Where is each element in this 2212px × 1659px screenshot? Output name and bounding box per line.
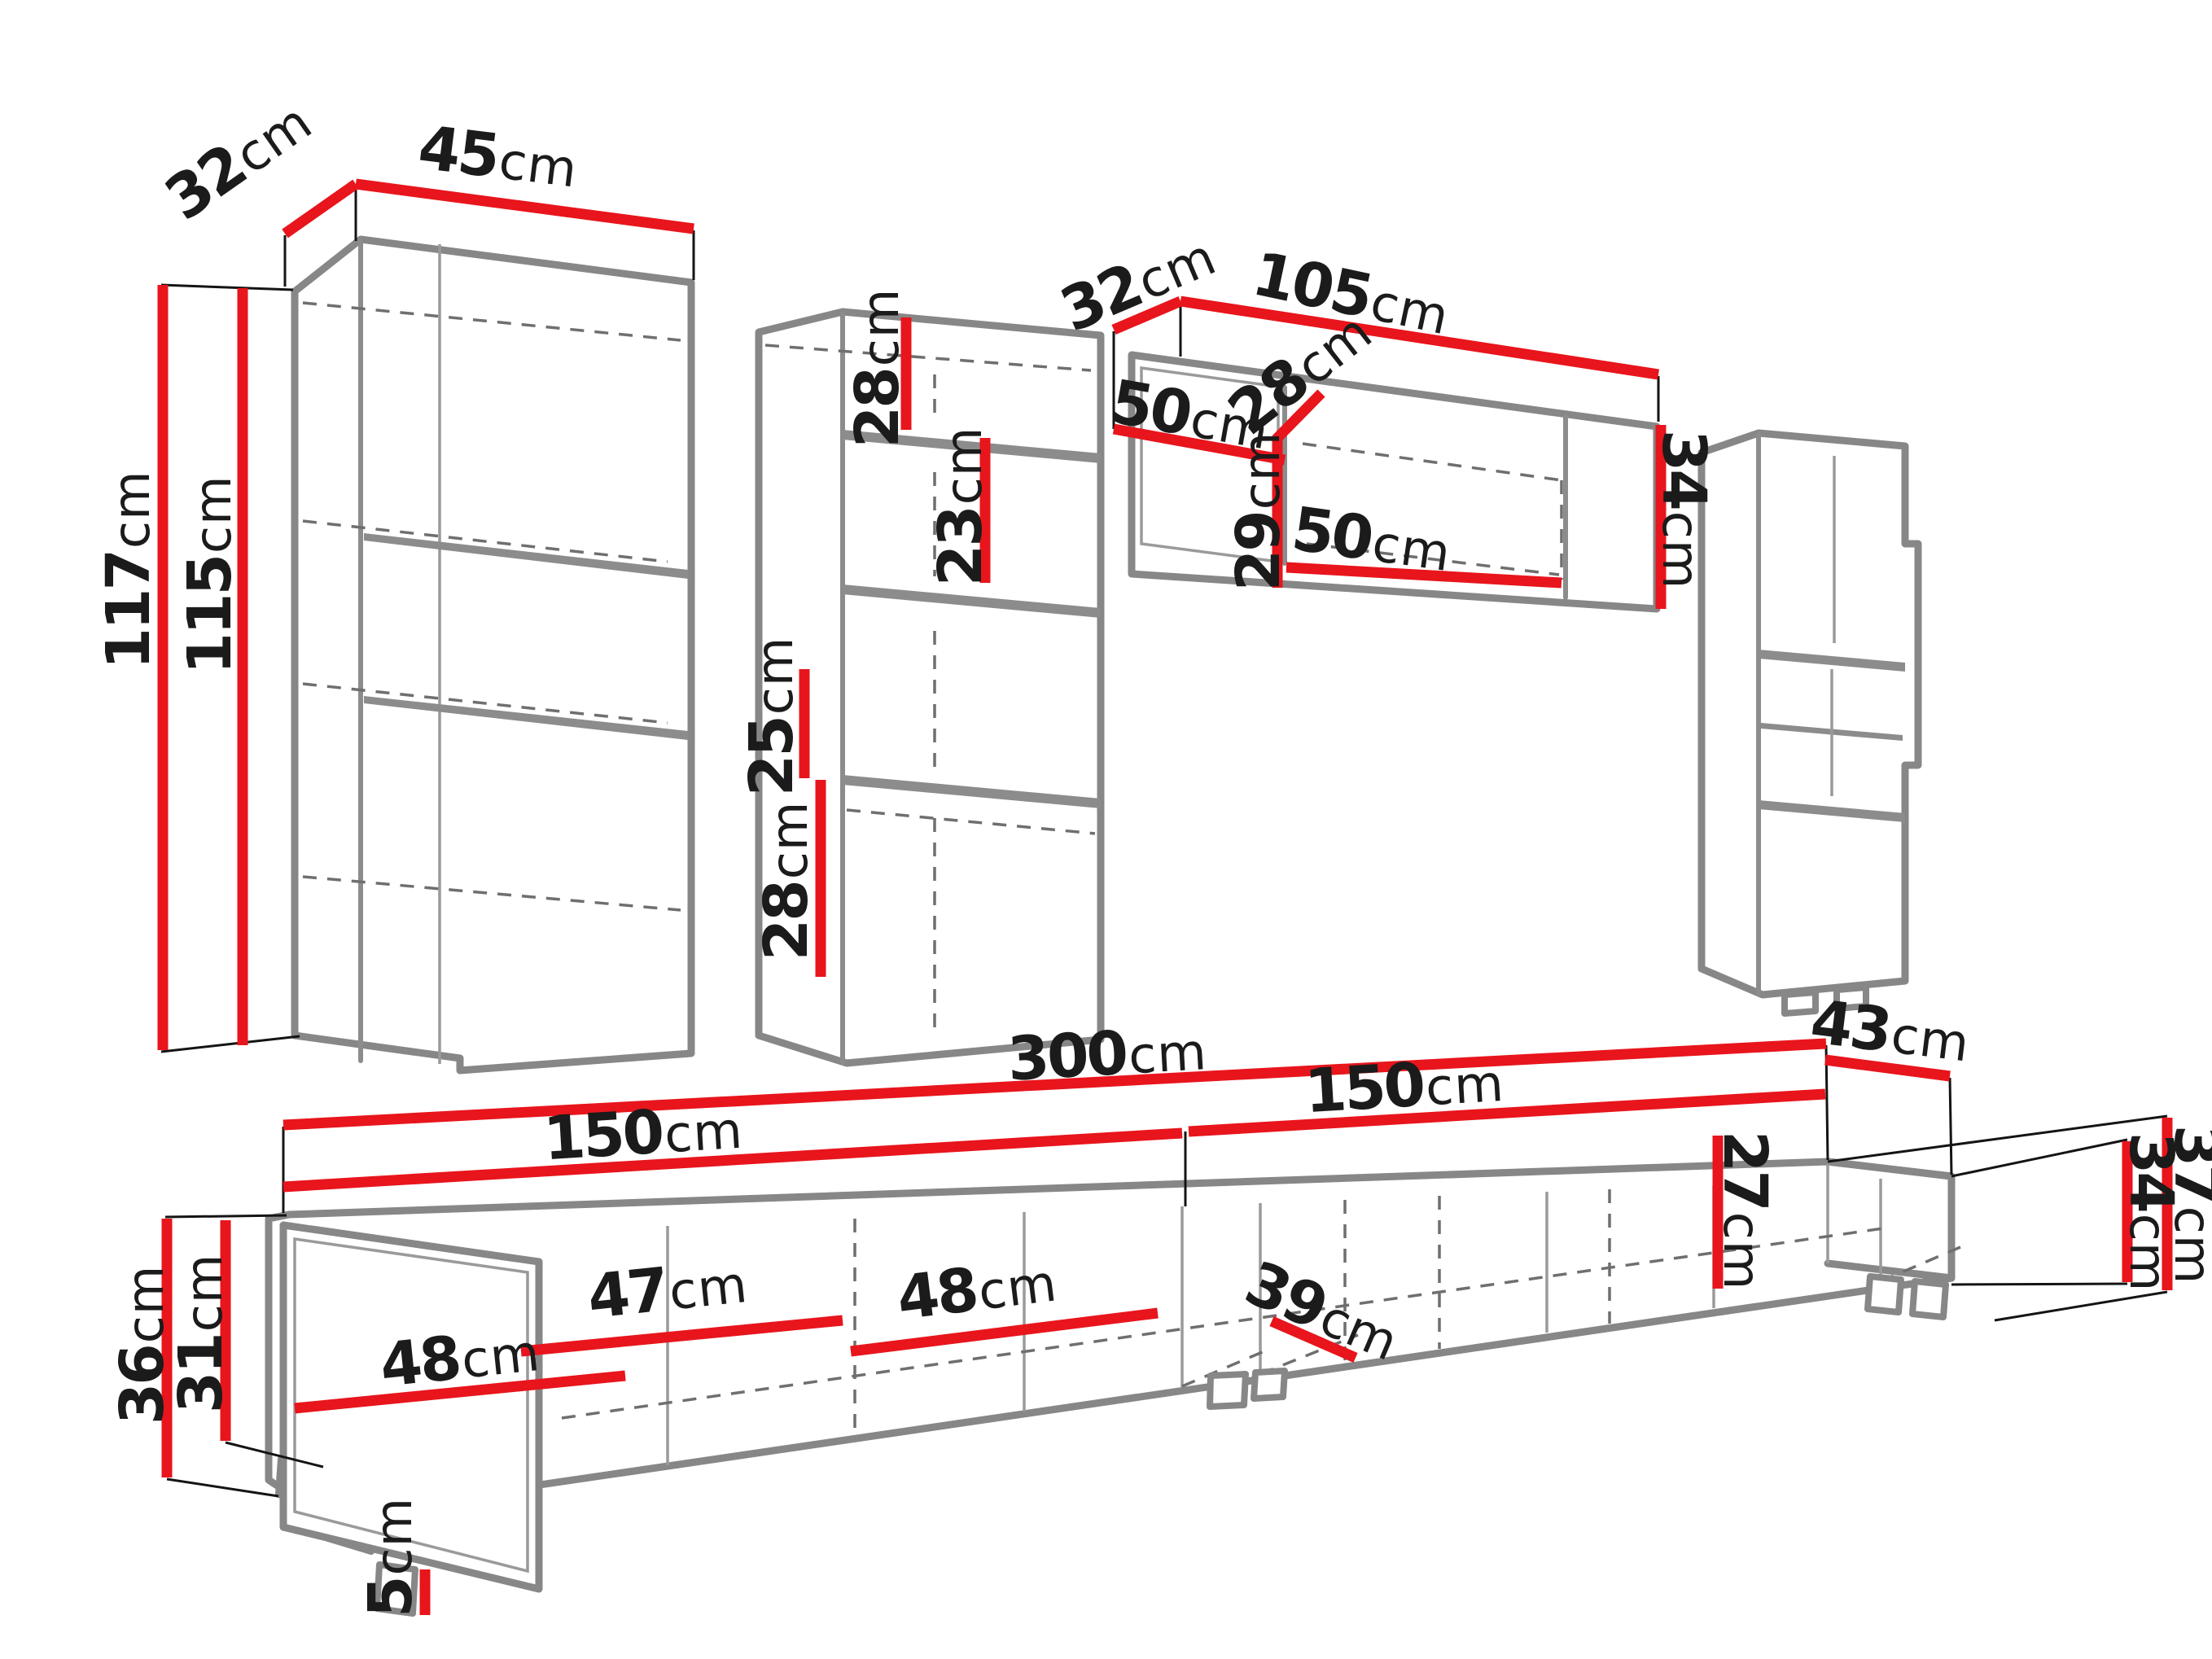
dim-left-total-height: 117cm (99, 471, 159, 670)
furniture-dimension-diagram: 32cm 45cm 117cm 115cm 28cm 23cm 25cm 28c… (0, 0, 2212, 1659)
dim-wall-side-height: 34cm (1654, 430, 1714, 589)
dim-tv-left-half: 150cm (541, 1097, 744, 1170)
dim-tv-right-half: 150cm (1303, 1050, 1506, 1122)
dim-tv-left-body: 31cm (171, 1254, 231, 1413)
dim-tv-foot-height: 5cm (361, 1497, 421, 1617)
dim-tv-right-body: 34cm (2121, 1132, 2181, 1292)
dim-mid-bottom: 28cm (756, 801, 817, 961)
dim-tv-inner-height: 27cm (1715, 1131, 1775, 1290)
right-column-cabinet (1702, 433, 1918, 1013)
dim-wall-inner-height: 29cm (1229, 431, 1289, 591)
dim-tv-total-width: 300cm (1006, 1018, 1209, 1090)
line-art (0, 0, 2212, 1659)
dim-mid-shelf: 23cm (931, 427, 991, 586)
dim-mid-top: 28cm (848, 288, 908, 448)
dim-mid-middle: 25cm (742, 637, 802, 796)
dim-left-front-height: 115cm (180, 475, 240, 675)
dim-tv-left-total: 36cm (112, 1265, 173, 1425)
